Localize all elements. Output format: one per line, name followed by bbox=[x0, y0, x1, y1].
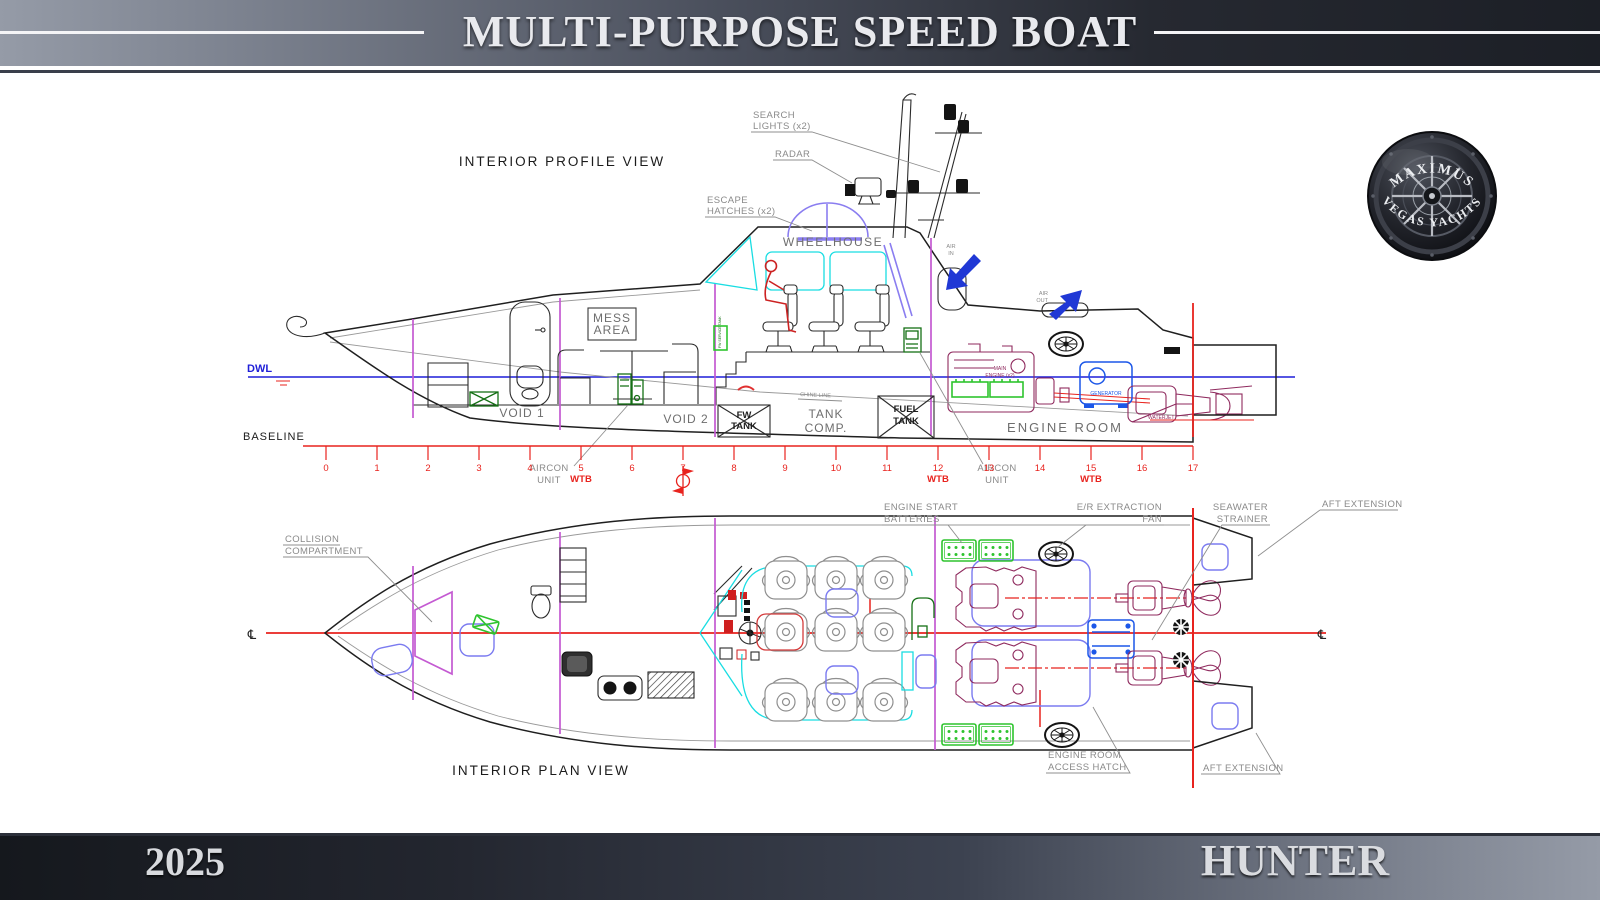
aircon-fwd-label-2: UNIT bbox=[537, 475, 561, 486]
profile-bulkheads bbox=[413, 238, 931, 437]
head-compartment bbox=[510, 302, 550, 406]
wheelhouse-label: WHEELHOUSE bbox=[783, 235, 883, 249]
aft-hatch-bottom bbox=[1212, 703, 1238, 729]
generator-plan bbox=[1088, 620, 1134, 658]
svg-text:5: 5 bbox=[578, 463, 583, 474]
svg-text:TANK: TANK bbox=[893, 416, 919, 427]
svg-text:16: 16 bbox=[1137, 463, 1148, 474]
aft-hatch-top bbox=[1202, 544, 1228, 570]
cargo-crate bbox=[470, 392, 498, 406]
svg-text:6: 6 bbox=[629, 463, 634, 474]
dash-pad bbox=[738, 387, 754, 391]
tank-comp-label-1: TANK bbox=[808, 407, 843, 421]
brand-logo: MAXIMUS VEGAS YACHTS bbox=[1368, 132, 1496, 260]
search-lights-label-2: LIGHTS (x2) bbox=[753, 121, 811, 132]
search-lights-label-1: SEARCH bbox=[753, 110, 795, 121]
fw-tank: FW TANK bbox=[718, 405, 770, 437]
mess-table bbox=[600, 351, 668, 399]
svg-text:2: 2 bbox=[425, 463, 430, 474]
batteries-label-1: ENGINE START bbox=[884, 502, 958, 513]
aft-extension-bottom-shape bbox=[1193, 681, 1252, 748]
aft-extension-profile bbox=[1193, 345, 1276, 415]
main-engine-port bbox=[956, 642, 1036, 706]
chine-line-label: CHINE LINE bbox=[800, 392, 831, 399]
dwl-label: DWL bbox=[247, 363, 272, 375]
aft-ext-top-label: AFT EXTENSION bbox=[1322, 499, 1403, 510]
frame-numbers: 0 1 2 3 4 5 6 7 8 9 10 11 12 13 14 15 16… bbox=[323, 463, 1198, 474]
collision-label-2: COMPARTMENT bbox=[285, 546, 363, 557]
wtb-5: WTB bbox=[570, 474, 592, 485]
access-hatch-label-2: ACCESS HATCH bbox=[1048, 762, 1127, 773]
waterjet-label: WATERJET bbox=[1148, 415, 1174, 421]
svg-text:0: 0 bbox=[323, 463, 328, 474]
mast bbox=[893, 94, 982, 238]
hull-profile-outline bbox=[325, 227, 1193, 442]
aft-window-plan bbox=[902, 652, 913, 690]
svg-text:TANK: TANK bbox=[731, 421, 757, 432]
tank-comp-label-2: COMP. bbox=[805, 421, 848, 435]
main-engine-label-1: MAIN bbox=[994, 366, 1007, 372]
access-hatch-label-1: ENGINE ROOM bbox=[1048, 750, 1121, 761]
service-tank: FW SERVICE TANK bbox=[714, 316, 727, 350]
bow-fairlead bbox=[287, 316, 325, 336]
companionway-stairs bbox=[700, 352, 746, 405]
bow-seat bbox=[370, 642, 415, 678]
baseline-label: BASELINE bbox=[243, 431, 305, 443]
aircon-unit-aft bbox=[904, 328, 921, 352]
battery-bank-4 bbox=[979, 724, 1013, 745]
er-fan-label-2: FAN bbox=[1142, 514, 1162, 525]
stern-cleat bbox=[1164, 347, 1180, 354]
svg-text:17: 17 bbox=[1188, 463, 1199, 474]
escape-hatches-label-1: ESCAPE bbox=[707, 195, 748, 206]
battery-bank-3 bbox=[942, 724, 976, 745]
frame-ruler bbox=[303, 446, 1193, 460]
battery-bank-2 bbox=[979, 540, 1013, 561]
sheer-inner-line bbox=[330, 290, 700, 338]
helm-seat-3 bbox=[855, 285, 889, 352]
main-engine-profile: MAIN ENGINE (x2) bbox=[948, 344, 1054, 412]
anchor-locker bbox=[428, 363, 468, 407]
air-in-arrow bbox=[946, 254, 981, 290]
air-in-label-2: IN bbox=[948, 251, 954, 257]
aft-door-plan bbox=[916, 655, 936, 688]
svg-text:14: 14 bbox=[1035, 463, 1046, 474]
svg-text:9: 9 bbox=[782, 463, 787, 474]
aircon-aft-label-2: UNIT bbox=[985, 475, 1009, 486]
batteries-label-2: BATTERIES bbox=[884, 514, 940, 525]
collision-label-1: COLLISION bbox=[285, 534, 339, 545]
extraction-fan-bottom bbox=[1045, 723, 1079, 747]
void1-label: VOID 1 bbox=[499, 406, 544, 420]
wtb-12: WTB bbox=[927, 474, 949, 485]
escape-hatches-label-2: HATCHES (x2) bbox=[707, 206, 776, 217]
air-out-label-2: OUT bbox=[1036, 298, 1048, 304]
gunwale-inner-bottom bbox=[338, 636, 1190, 741]
wtb-15: WTB bbox=[1080, 474, 1102, 485]
generator-label: GENERATOR bbox=[1090, 391, 1122, 397]
interior-plan-view: INTERIOR PLAN VIEW ℄ ℄ bbox=[246, 499, 1403, 788]
centerline-symbol-right: ℄ bbox=[1316, 628, 1328, 643]
strainer-label-2: STRAINER bbox=[1217, 514, 1268, 525]
engine-room-label: ENGINE ROOM bbox=[1007, 420, 1123, 435]
centerline-symbol-left: ℄ bbox=[246, 628, 258, 643]
boat-drawing: MAXIMUS VEGAS YACHTS INTERIOR PROFILE VI… bbox=[0, 0, 1600, 900]
companionway-ladder bbox=[560, 548, 586, 602]
svg-text:4: 4 bbox=[527, 463, 532, 474]
radar-label: RADAR bbox=[775, 149, 810, 160]
svg-text:FUEL: FUEL bbox=[894, 404, 919, 415]
air-in-label-1: AIR bbox=[946, 244, 955, 250]
mess-chair-right bbox=[664, 344, 698, 404]
aft-ext-bottom-label: AFT EXTENSION bbox=[1203, 763, 1284, 774]
air-out-arrow bbox=[1049, 290, 1082, 320]
fuel-tank: FUEL TANK bbox=[878, 396, 934, 438]
svg-text:11: 11 bbox=[882, 463, 892, 474]
intake-grate-stbd bbox=[1173, 619, 1189, 635]
mess-area: MESS AREA bbox=[558, 308, 698, 404]
midship-symbol bbox=[672, 466, 694, 496]
main-engine-stbd bbox=[956, 567, 1036, 631]
svg-text:12: 12 bbox=[933, 463, 944, 474]
svg-text:1: 1 bbox=[374, 463, 379, 474]
toilet-plan bbox=[531, 586, 551, 618]
intake-grate-port bbox=[1173, 652, 1189, 668]
svg-text:FW SERVICE TANK: FW SERVICE TANK bbox=[718, 316, 722, 348]
svg-text:8: 8 bbox=[731, 463, 736, 474]
cabin-seating bbox=[742, 556, 912, 721]
blueprint-page: MULTI-PURPOSE SPEED BOAT 2025 HUNTER bbox=[0, 0, 1600, 900]
aircon-fwd-label-1: AIRCON bbox=[529, 463, 568, 474]
chine-label-rule bbox=[798, 399, 842, 401]
er-fan-label-1: E/R EXTRACTION bbox=[1077, 502, 1162, 513]
galley bbox=[562, 652, 694, 700]
svg-text:10: 10 bbox=[831, 463, 842, 474]
void2-label: VOID 2 bbox=[663, 412, 708, 426]
engine-hatch-port bbox=[972, 640, 1090, 706]
strainer-label-1: SEAWATER bbox=[1213, 502, 1268, 513]
plan-view-title: INTERIOR PLAN VIEW bbox=[452, 763, 630, 778]
svg-text:FW: FW bbox=[737, 410, 752, 421]
profile-view-title: INTERIOR PROFILE VIEW bbox=[459, 154, 665, 169]
svg-text:13: 13 bbox=[984, 463, 995, 474]
svg-text:15: 15 bbox=[1086, 463, 1097, 474]
main-engine-label-2: ENGINE (x2) bbox=[985, 373, 1015, 379]
engine-room-fan-profile bbox=[1049, 332, 1083, 356]
helm-seat-2 bbox=[809, 285, 843, 352]
interior-profile-view: INTERIOR PROFILE VIEW DWL CHINE LINE bbox=[243, 94, 1295, 610]
mess-area-label-2: AREA bbox=[594, 323, 631, 337]
air-out-label-1: AIR bbox=[1039, 291, 1048, 297]
escape-hatch-dome bbox=[788, 203, 868, 239]
waterjet-profile: WATERJET bbox=[1128, 386, 1254, 422]
svg-text:3: 3 bbox=[476, 463, 481, 474]
dwl-mark bbox=[276, 381, 290, 385]
helm-seat-1 bbox=[763, 285, 797, 352]
battery-bank-1 bbox=[942, 540, 976, 561]
extraction-fan-top bbox=[1039, 542, 1073, 566]
